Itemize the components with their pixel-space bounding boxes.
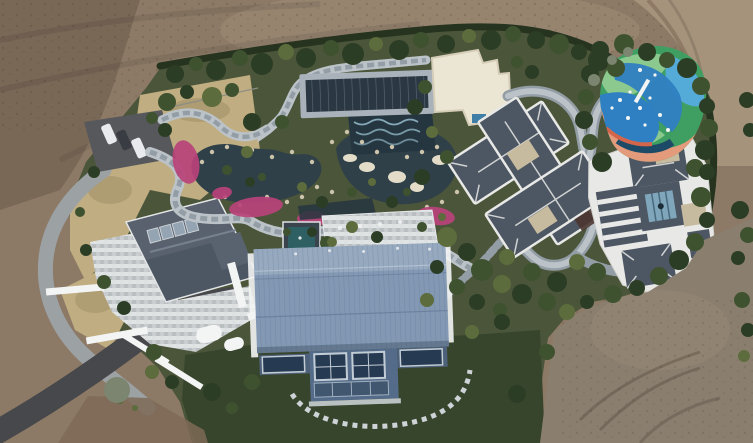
aerial-estate-photo: Overhead view of a landscaped hillside e… [0, 0, 753, 443]
aerial-photo-canvas [0, 0, 753, 443]
